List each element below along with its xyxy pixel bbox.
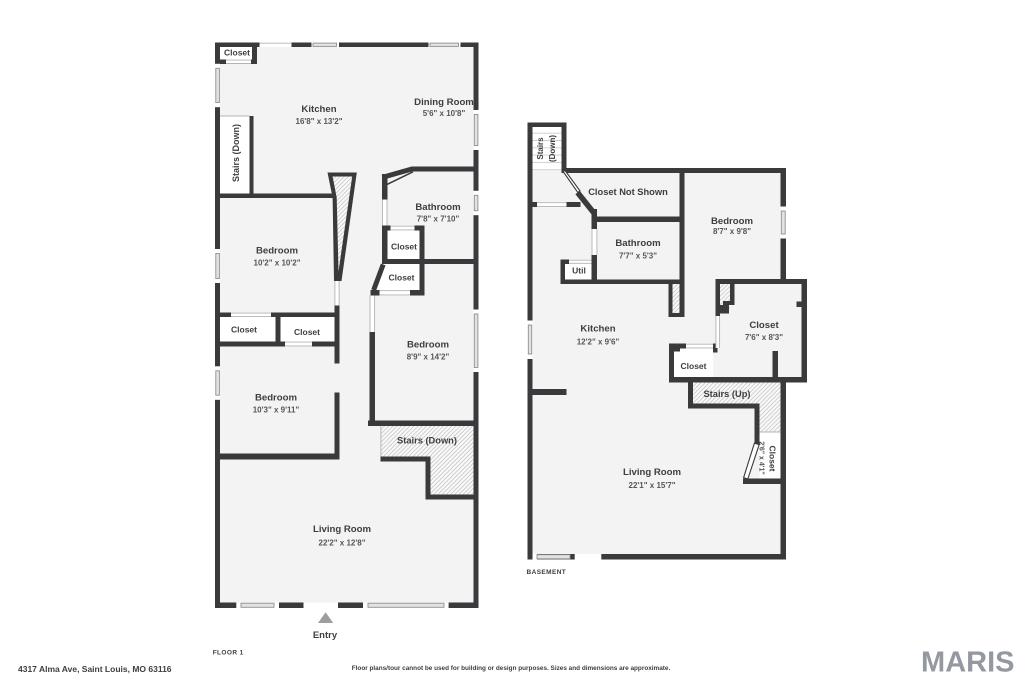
svg-text:8'9" x 14'2": 8'9" x 14'2" <box>407 353 450 362</box>
svg-text:Bedroom: Bedroom <box>407 340 449 351</box>
svg-text:BASEMENT: BASEMENT <box>527 569 567 576</box>
svg-text:Util: Util <box>572 266 586 276</box>
svg-text:7'6" x 8'3": 7'6" x 8'3" <box>745 333 783 342</box>
svg-text:5'6" x 10'8": 5'6" x 10'8" <box>423 109 466 118</box>
svg-text:Bathroom: Bathroom <box>615 238 660 249</box>
svg-text:MARIS: MARIS <box>921 647 1014 679</box>
svg-text:Stairs: Stairs <box>536 137 545 160</box>
svg-text:7'8" x 7'10": 7'8" x 7'10" <box>417 215 460 224</box>
svg-text:Kitchen: Kitchen <box>301 104 336 115</box>
svg-text:Closet: Closet <box>749 320 779 331</box>
svg-text:8'7" x 9'8": 8'7" x 9'8" <box>713 227 751 236</box>
svg-text:(Down): (Down) <box>548 135 557 162</box>
svg-text:Stairs (Down): Stairs (Down) <box>397 436 457 446</box>
svg-text:Bedroom: Bedroom <box>711 216 753 227</box>
svg-text:Kitchen: Kitchen <box>580 324 615 335</box>
svg-text:Dining Room: Dining Room <box>414 97 474 108</box>
svg-text:Closet: Closet <box>294 327 320 337</box>
svg-text:Closet: Closet <box>389 272 415 282</box>
svg-text:Living Room: Living Room <box>623 467 681 478</box>
svg-text:10'3" x 9'11": 10'3" x 9'11" <box>253 406 300 415</box>
svg-text:Closet: Closet <box>768 446 778 472</box>
svg-text:Closet: Closet <box>681 361 707 371</box>
svg-text:12'2" x 9'6": 12'2" x 9'6" <box>577 337 620 346</box>
svg-text:FLOOR 1: FLOOR 1 <box>213 650 244 657</box>
svg-text:Bedroom: Bedroom <box>256 246 298 257</box>
svg-text:Bedroom: Bedroom <box>255 393 297 404</box>
svg-text:7'7" x 5'3": 7'7" x 5'3" <box>619 251 657 260</box>
svg-text:Living Room: Living Room <box>313 524 371 535</box>
svg-text:Closet Not Shown: Closet Not Shown <box>588 187 668 197</box>
svg-text:Closet: Closet <box>231 324 257 334</box>
svg-text:Closet: Closet <box>224 47 250 57</box>
svg-text:Closet: Closet <box>391 242 417 252</box>
svg-text:10'2" x 10'2": 10'2" x 10'2" <box>254 259 301 268</box>
svg-text:Bathroom: Bathroom <box>415 202 460 213</box>
svg-text:16'8" x 13'2": 16'8" x 13'2" <box>296 117 343 126</box>
svg-text:Stairs (Down): Stairs (Down) <box>231 124 241 182</box>
svg-text:Floor plans/tour cannot be use: Floor plans/tour cannot be used for buil… <box>352 665 671 672</box>
svg-text:2'6" x 4'1": 2'6" x 4'1" <box>758 441 765 474</box>
svg-text:Stairs (Up): Stairs (Up) <box>703 389 750 399</box>
svg-text:4317 Alma Ave, Saint Louis, MO: 4317 Alma Ave, Saint Louis, MO 63116 <box>18 664 172 674</box>
svg-text:22'1" x 15'7": 22'1" x 15'7" <box>629 481 676 490</box>
svg-text:Entry: Entry <box>313 630 338 641</box>
svg-text:22'2" x 12'8": 22'2" x 12'8" <box>319 538 366 547</box>
